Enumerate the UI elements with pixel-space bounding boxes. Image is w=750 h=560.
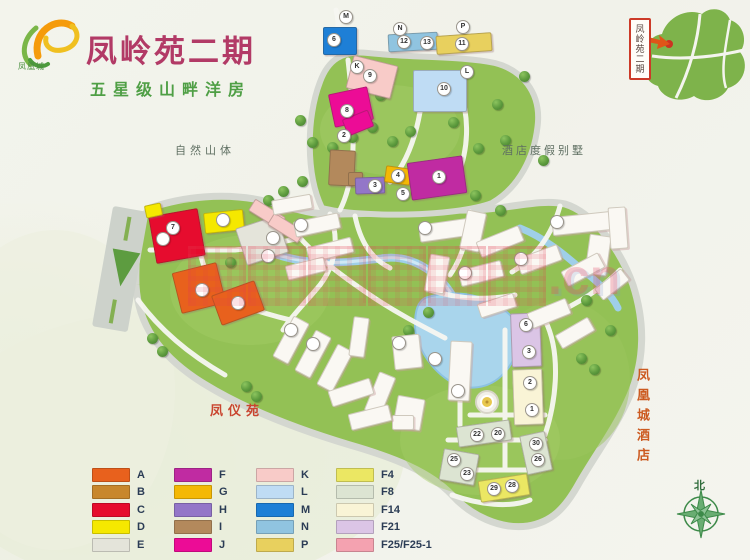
legend-item: J bbox=[174, 536, 256, 554]
legend-item: F21 bbox=[336, 519, 456, 537]
building-number-badge: 30 bbox=[529, 437, 543, 451]
legend-label: F14 bbox=[381, 504, 400, 516]
building-number-badge: 28 bbox=[505, 479, 519, 493]
legend-item: F14 bbox=[336, 501, 456, 519]
legend-label: C bbox=[137, 504, 145, 516]
building-badge bbox=[294, 218, 308, 232]
legend-swatch bbox=[92, 503, 130, 517]
building-number-badge: 10 bbox=[437, 82, 451, 96]
building-badge bbox=[284, 323, 298, 337]
legend-swatch bbox=[336, 468, 374, 482]
building-number-badge: 23 bbox=[460, 467, 474, 481]
legend-label: F25/F25-1 bbox=[381, 539, 432, 551]
label-hotel-villa: 酒店度假别墅 bbox=[502, 142, 586, 158]
legend-swatch bbox=[336, 485, 374, 499]
building-number-badge: 2 bbox=[523, 376, 537, 390]
legend-swatch bbox=[256, 538, 294, 552]
building-number-badge: 25 bbox=[447, 453, 461, 467]
building-number-badge: L bbox=[460, 65, 474, 79]
legend-label: J bbox=[219, 539, 225, 551]
legend-swatch bbox=[174, 485, 212, 499]
building-number-badge: K bbox=[350, 60, 364, 74]
building-number-badge: 29 bbox=[487, 482, 501, 496]
legend-item: P bbox=[256, 536, 336, 554]
building-badge bbox=[514, 252, 528, 266]
legend-item: F bbox=[174, 466, 256, 484]
building-number-badge: 5 bbox=[396, 187, 410, 201]
label-natural-mountain: 自然山体 bbox=[175, 142, 235, 158]
legend-label: H bbox=[219, 504, 227, 516]
legend-item: B bbox=[92, 484, 174, 502]
building-number-badge: 1 bbox=[432, 170, 446, 184]
building-badge bbox=[231, 296, 245, 310]
legend-swatch bbox=[336, 503, 374, 517]
legend-label: L bbox=[301, 486, 308, 498]
legend-label: F4 bbox=[381, 469, 394, 481]
legend-label: P bbox=[301, 539, 308, 551]
building-badge bbox=[156, 232, 170, 246]
legend-item: F4 bbox=[336, 466, 456, 484]
legend-label: B bbox=[137, 486, 145, 498]
legend-swatch bbox=[256, 520, 294, 534]
legend-item: F8 bbox=[336, 484, 456, 502]
legend-label: A bbox=[137, 469, 145, 481]
building-number-badge: 22 bbox=[470, 428, 484, 442]
building-badge bbox=[428, 352, 442, 366]
compass-north-label: 北 bbox=[694, 477, 705, 493]
legend-swatch bbox=[256, 468, 294, 482]
building-number-badge: 8 bbox=[340, 104, 354, 118]
building-number-badge: 3 bbox=[368, 179, 382, 193]
legend-swatch bbox=[336, 520, 374, 534]
legend-label: F8 bbox=[381, 486, 394, 498]
legend-label: N bbox=[301, 521, 309, 533]
legend-label: G bbox=[219, 486, 228, 498]
legend-item: C bbox=[92, 501, 174, 519]
legend-swatch bbox=[92, 468, 130, 482]
building-number-badge: 2 bbox=[337, 129, 351, 143]
label-phoenix-hotel: 凤凰城酒店 bbox=[633, 368, 652, 468]
legend-item: M bbox=[256, 501, 336, 519]
building-number-badge: 20 bbox=[491, 427, 505, 441]
page-title: 凤岭苑二期 bbox=[86, 26, 256, 71]
legend-item: N bbox=[256, 519, 336, 537]
logo-text: 凤凰城 bbox=[18, 61, 45, 72]
legend-label: M bbox=[301, 504, 310, 516]
legend-label: E bbox=[137, 539, 144, 551]
legend-item: H bbox=[174, 501, 256, 519]
building-number-badge: 6 bbox=[519, 318, 533, 332]
building-badge bbox=[550, 215, 564, 229]
legend-item: L bbox=[256, 484, 336, 502]
legend: ABCDEFGHIJKLMNPF4F8F14F21F25/F25-1 bbox=[92, 466, 456, 554]
legend-label: D bbox=[137, 521, 145, 533]
building-badge bbox=[195, 283, 209, 297]
building-number-badge: 1 bbox=[525, 403, 539, 417]
building-number-badge: 11 bbox=[455, 37, 469, 51]
building-number-badge: 4 bbox=[391, 169, 405, 183]
building-number-badge: N bbox=[393, 22, 407, 36]
building-number-badge: M bbox=[339, 10, 353, 24]
inset-map-label: 凤岭苑二期 bbox=[629, 18, 651, 80]
building-number-badge: 7 bbox=[166, 221, 180, 235]
building-number-badge: 26 bbox=[531, 453, 545, 467]
legend-swatch bbox=[174, 538, 212, 552]
legend-label: I bbox=[219, 521, 222, 533]
legend-item: E bbox=[92, 536, 174, 554]
building-number-badge: 3 bbox=[522, 345, 536, 359]
legend-label: F21 bbox=[381, 521, 400, 533]
legend-item: A bbox=[92, 466, 174, 484]
building-badge bbox=[261, 249, 275, 263]
legend-item: D bbox=[92, 519, 174, 537]
page-subtitle: 五星级山畔洋房 bbox=[90, 76, 251, 100]
building-badge bbox=[451, 384, 465, 398]
legend-item: G bbox=[174, 484, 256, 502]
legend-swatch bbox=[92, 485, 130, 499]
legend-swatch bbox=[256, 485, 294, 499]
legend-swatch bbox=[92, 520, 130, 534]
label-fengyiyuan: 凤仪苑 bbox=[210, 400, 264, 419]
building-number-badge: 13 bbox=[420, 36, 434, 50]
legend-swatch bbox=[256, 503, 294, 517]
building-badge bbox=[458, 266, 472, 280]
building-badge bbox=[266, 231, 280, 245]
legend-item: K bbox=[256, 466, 336, 484]
legend-swatch bbox=[336, 538, 374, 552]
legend-item: I bbox=[174, 519, 256, 537]
building-badge bbox=[392, 336, 406, 350]
building-badge bbox=[306, 337, 320, 351]
site-plan-poster: 6MNP121311K910L8213457632122202523292830… bbox=[0, 0, 750, 560]
building-badge bbox=[418, 221, 432, 235]
building-number-badge: 6 bbox=[327, 33, 341, 47]
building-badge bbox=[216, 213, 230, 227]
legend-swatch bbox=[92, 538, 130, 552]
building-number-badge: P bbox=[456, 20, 470, 34]
legend-swatch bbox=[174, 503, 212, 517]
building-number-badge: 9 bbox=[363, 69, 377, 83]
legend-item: F25/F25-1 bbox=[336, 536, 456, 554]
legend-label: F bbox=[219, 469, 226, 481]
building-number-badge: 12 bbox=[397, 35, 411, 49]
legend-swatch bbox=[174, 468, 212, 482]
legend-label: K bbox=[301, 469, 309, 481]
legend-swatch bbox=[174, 520, 212, 534]
